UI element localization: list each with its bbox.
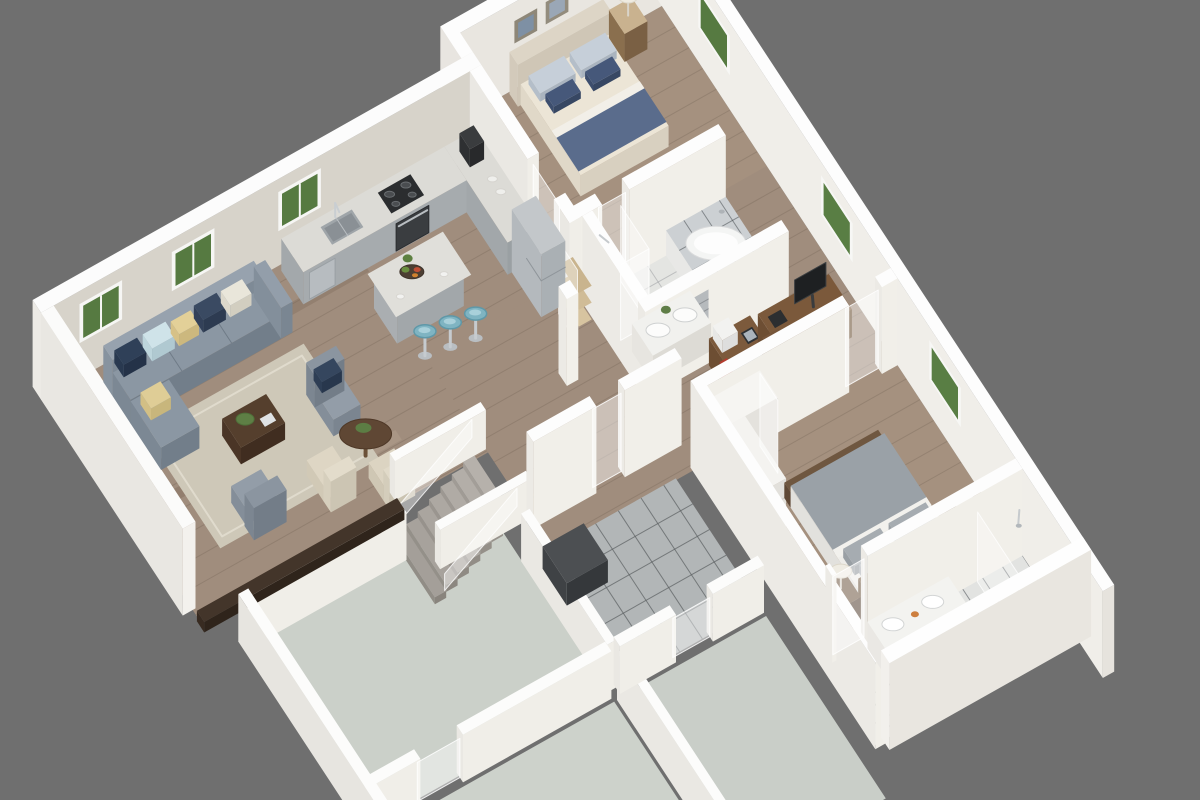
burner: [392, 201, 400, 206]
wall-office-bed2: [882, 278, 898, 374]
vanity-sink: [673, 308, 697, 322]
wall-north: [33, 300, 41, 400]
cup: [440, 272, 448, 277]
stairwell-wall: [390, 453, 395, 500]
stool-highlight: [469, 310, 481, 316]
wall-west: [183, 522, 196, 616]
canister: [487, 176, 497, 182]
stool-highlight: [444, 318, 456, 324]
floor-plan-render-canvas: [0, 0, 1200, 800]
canister: [496, 189, 506, 195]
fruit-greens: [403, 254, 413, 262]
column: [567, 293, 578, 386]
stairwell-wall: [435, 522, 440, 569]
shower-head: [1018, 510, 1019, 524]
burner: [401, 182, 411, 188]
shower-head: [1016, 524, 1022, 528]
burner: [385, 191, 395, 197]
floor-plan-3d-render: [0, 0, 1200, 800]
dining-plant: [355, 423, 371, 433]
sofa-armrest: [281, 302, 292, 339]
basement-wall: [614, 637, 620, 694]
monitor-stand: [812, 295, 813, 306]
soap: [911, 611, 919, 617]
vanity-sink: [922, 595, 944, 608]
ghost-door: [593, 393, 621, 487]
wall-east: [1103, 585, 1114, 678]
fruit: [414, 267, 421, 272]
vanity-plant: [661, 306, 671, 314]
stool-highlight: [418, 327, 430, 333]
cup: [396, 294, 404, 299]
burner: [408, 192, 416, 197]
table-plant: [236, 413, 254, 425]
column: [559, 286, 567, 386]
fruit: [412, 273, 418, 277]
wall-bath2-north: [825, 566, 832, 663]
vanity-sink: [646, 323, 670, 337]
vanity-sink: [882, 618, 904, 631]
tub-faucet: [719, 210, 725, 214]
fruit: [401, 267, 409, 273]
wall-south-outer: [881, 650, 889, 750]
ghost-door: [833, 559, 864, 655]
